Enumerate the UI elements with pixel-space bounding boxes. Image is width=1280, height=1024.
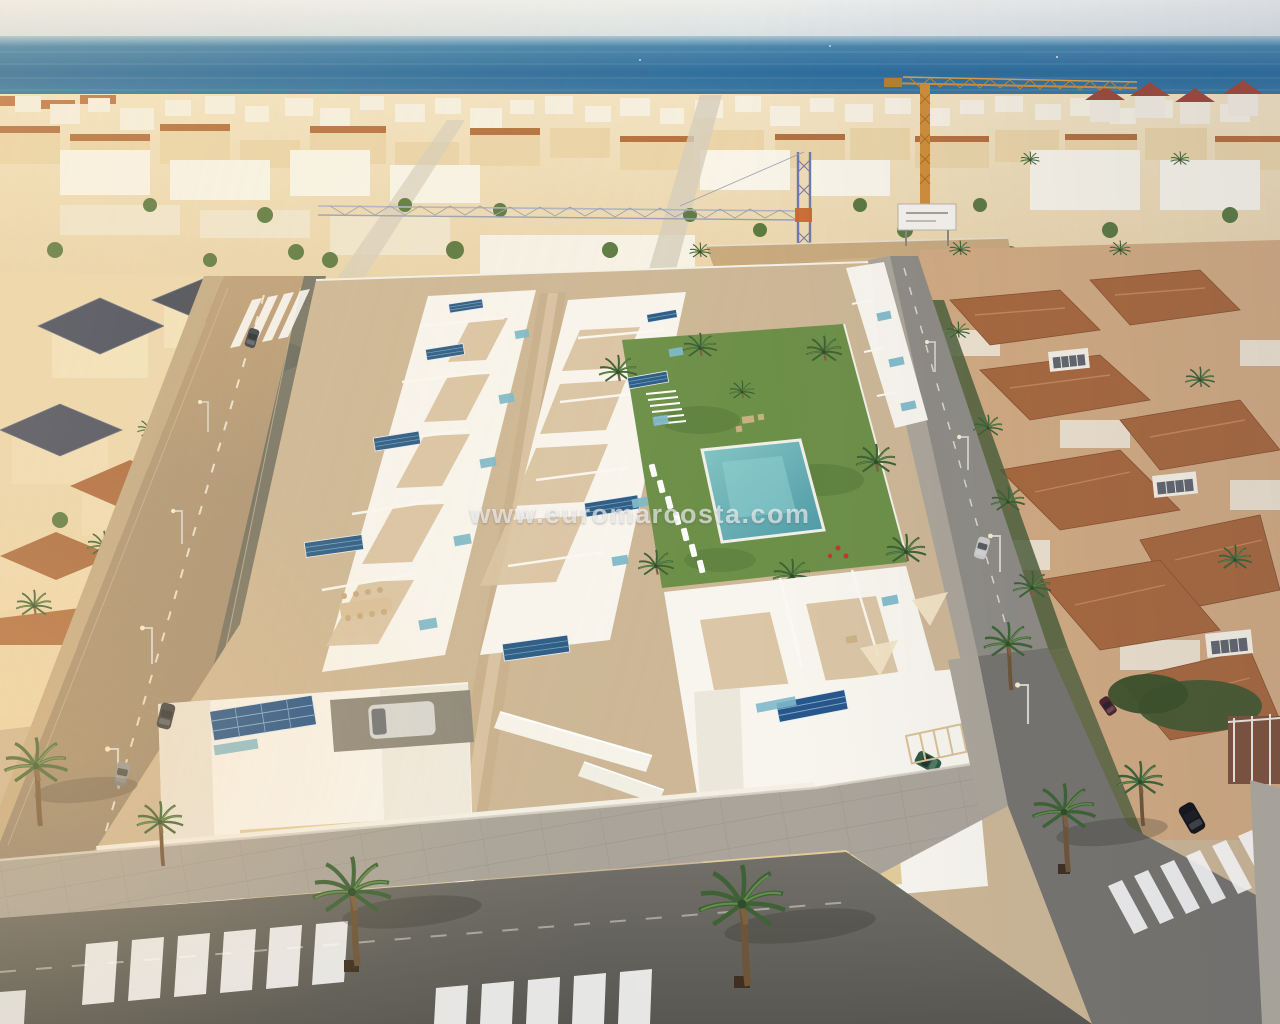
sea	[0, 36, 1280, 102]
scene-svg	[0, 0, 1280, 1024]
aerial-render: www.euromarcosta.com	[0, 0, 1280, 1024]
carport-van	[368, 701, 436, 740]
